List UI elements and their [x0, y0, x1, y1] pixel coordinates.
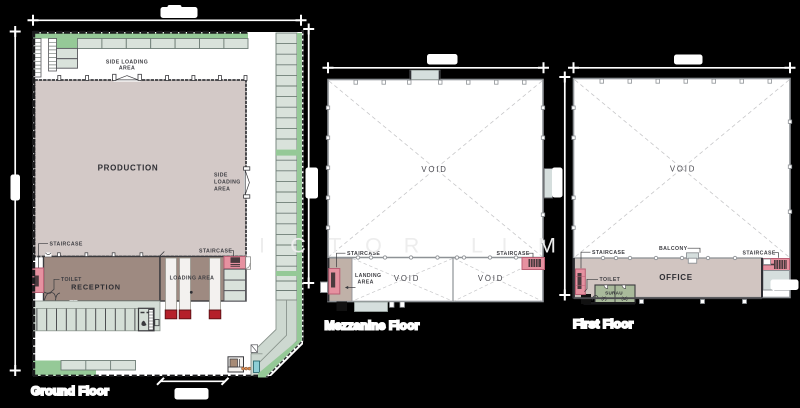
- svg-text:BALCONY: BALCONY: [659, 246, 688, 252]
- svg-text:Ground Floor: Ground Floor: [31, 384, 109, 398]
- svg-text:LOADING AREA: LOADING AREA: [170, 276, 215, 282]
- svg-text:I: I: [259, 234, 265, 258]
- svg-text:AREA: AREA: [119, 66, 135, 72]
- svg-text:AREA: AREA: [214, 187, 230, 193]
- svg-text:STAIRCASE: STAIRCASE: [592, 250, 625, 256]
- svg-text:OFFICE: OFFICE: [659, 273, 693, 282]
- svg-text:L: L: [471, 234, 483, 258]
- svg-text:SIDE: SIDE: [214, 173, 228, 179]
- svg-text:T: T: [328, 234, 341, 258]
- svg-text:LOADING: LOADING: [214, 180, 241, 186]
- svg-text:STAIRCASE: STAIRCASE: [50, 242, 83, 248]
- svg-text:STAIRCASE: STAIRCASE: [743, 251, 776, 257]
- svg-text:VOID: VOID: [670, 165, 696, 174]
- svg-text:TOILET: TOILET: [61, 277, 82, 283]
- svg-text:R: R: [404, 234, 420, 258]
- svg-text:VOID: VOID: [478, 274, 504, 283]
- svg-text:SURAU: SURAU: [605, 291, 623, 296]
- svg-text:I: I: [502, 234, 508, 258]
- svg-text:VOID: VOID: [421, 165, 447, 174]
- svg-text:O: O: [365, 234, 382, 258]
- svg-text:C: C: [290, 234, 306, 258]
- svg-text:VOID: VOID: [394, 274, 420, 283]
- svg-text:STAIRCASE: STAIRCASE: [199, 249, 232, 255]
- svg-text:RECEPTION: RECEPTION: [71, 283, 121, 292]
- svg-text:LANDING: LANDING: [355, 273, 381, 279]
- svg-text:First Floor: First Floor: [573, 317, 634, 331]
- svg-text:Mezzanine Floor: Mezzanine Floor: [325, 319, 420, 333]
- svg-text:PRODUCTION: PRODUCTION: [98, 164, 159, 173]
- svg-text:M: M: [538, 234, 556, 258]
- svg-text:AREA: AREA: [358, 280, 374, 286]
- svg-text:TOILET: TOILET: [600, 277, 621, 283]
